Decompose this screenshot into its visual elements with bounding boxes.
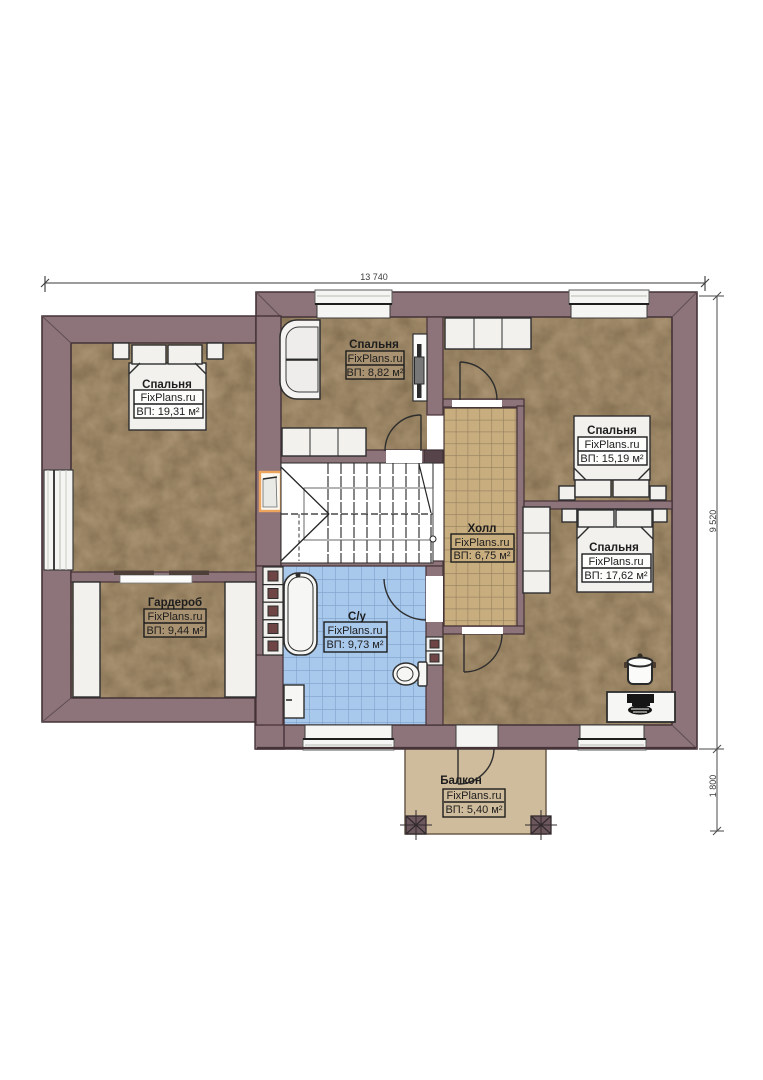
svg-text:С/у: С/у <box>348 611 367 623</box>
svg-text:ВП: 5,40 м²: ВП: 5,40 м² <box>445 804 502 816</box>
svg-text:Балкон: Балкон <box>440 775 482 787</box>
svg-text:13 740: 13 740 <box>360 272 388 282</box>
svg-text:Спальня: Спальня <box>349 339 399 351</box>
svg-text:FixPlans.ru: FixPlans.ru <box>147 611 202 623</box>
svg-text:ВП: 6,75 м²: ВП: 6,75 м² <box>453 550 510 562</box>
svg-text:ВП: 15,19 м²: ВП: 15,19 м² <box>580 453 644 465</box>
svg-text:FixPlans.ru: FixPlans.ru <box>347 353 402 365</box>
svg-text:Гардероб: Гардероб <box>148 597 202 609</box>
svg-text:9 520: 9 520 <box>708 510 718 533</box>
svg-text:FixPlans.ru: FixPlans.ru <box>140 392 195 404</box>
svg-text:FixPlans.ru: FixPlans.ru <box>446 790 501 802</box>
svg-text:FixPlans.ru: FixPlans.ru <box>588 556 643 568</box>
svg-text:Спальня: Спальня <box>587 425 637 437</box>
svg-text:ВП: 9,44 м²: ВП: 9,44 м² <box>146 625 203 637</box>
svg-text:1 800: 1 800 <box>708 775 718 798</box>
svg-text:FixPlans.ru: FixPlans.ru <box>327 625 382 637</box>
svg-text:ВП: 9,73 м²: ВП: 9,73 м² <box>326 639 383 651</box>
svg-text:Холл: Холл <box>468 523 497 535</box>
svg-text:Спальня: Спальня <box>589 542 639 554</box>
svg-text:ВП: 8,82 м²: ВП: 8,82 м² <box>346 367 403 379</box>
svg-text:Спальня: Спальня <box>142 379 192 391</box>
svg-text:FixPlans.ru: FixPlans.ru <box>454 537 509 549</box>
svg-text:ВП: 19,31 м²: ВП: 19,31 м² <box>136 406 200 418</box>
svg-text:FixPlans.ru: FixPlans.ru <box>584 439 639 451</box>
svg-text:ВП: 17,62 м²: ВП: 17,62 м² <box>584 570 648 582</box>
